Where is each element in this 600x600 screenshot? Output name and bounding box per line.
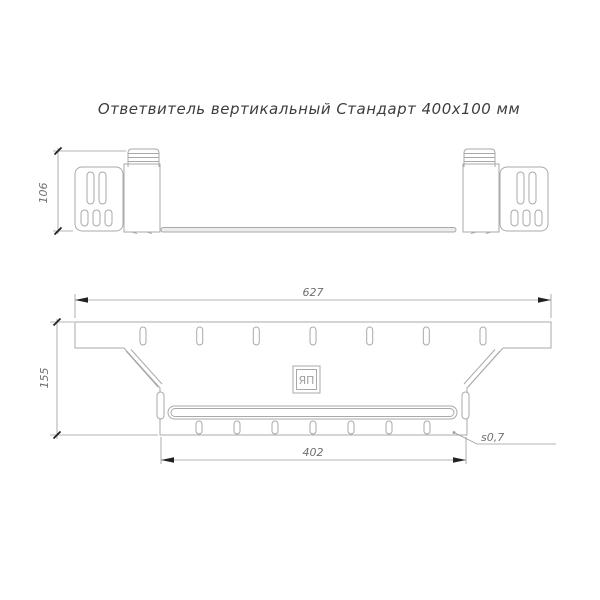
drawing-sheet: Ответвитель вертикальный Стандарт 400х10… (0, 0, 600, 600)
dim-arrow (538, 297, 551, 303)
side-wall-tab (157, 392, 164, 419)
left-end-connector (75, 149, 160, 234)
dimension-402: 402 (161, 437, 466, 464)
dim-value-155: 155 (38, 368, 51, 389)
dim-value-627: 627 (303, 286, 324, 299)
leader-line (454, 433, 556, 445)
dimension-627: 627 (75, 286, 551, 318)
tray-bottom-strip (161, 228, 456, 233)
dim-arrow (453, 457, 466, 463)
side-view: 106 (37, 148, 548, 235)
thickness-value: s0,7 (481, 431, 504, 444)
dim-value-106: 106 (37, 183, 50, 204)
thickness-annotation: s0,7 (453, 431, 556, 444)
right-end-connector (463, 149, 548, 234)
technical-drawing: Ответвитель вертикальный Стандарт 400х10… (0, 0, 600, 600)
dim-arrow (161, 457, 174, 463)
plan-view: ЯП 627 155 402 (38, 286, 556, 464)
drawing-title: Ответвитель вертикальный Стандарт 400х10… (98, 100, 520, 118)
channel-body (124, 164, 160, 232)
dim-value-402: 402 (303, 446, 324, 459)
logo-glyph: ЯП (299, 374, 315, 387)
dim-arrow (75, 297, 88, 303)
